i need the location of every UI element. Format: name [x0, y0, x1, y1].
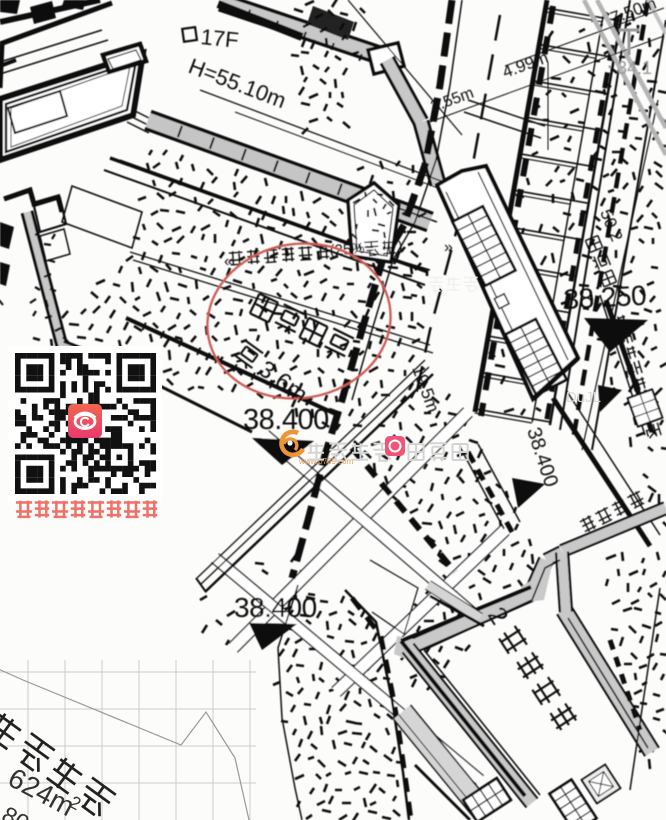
svg-text:▪: ▪ — [608, 62, 612, 73]
svg-text:38.400: 38.400 — [234, 592, 317, 623]
svg-text:(25%: (25% — [329, 240, 365, 259]
svg-text:»: » — [444, 239, 453, 256]
svg-text:DuJL: DuJL — [566, 389, 601, 406]
svg-text:17F: 17F — [199, 24, 239, 53]
svg-text:38.400: 38.400 — [243, 404, 329, 436]
svg-text:«: « — [224, 253, 233, 270]
svg-text:34.1: 34.1 — [617, 58, 652, 78]
